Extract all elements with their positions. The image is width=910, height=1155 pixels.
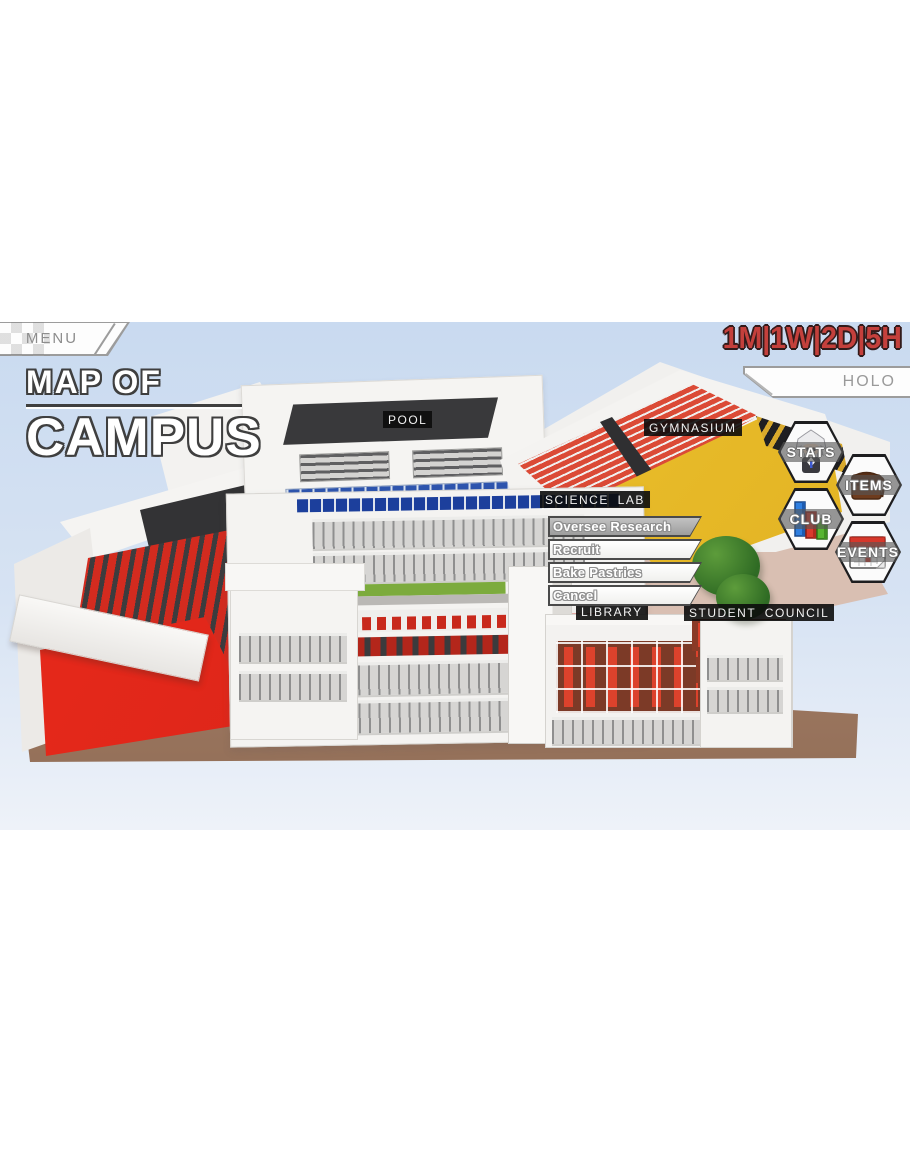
classroom-window-band: [312, 514, 585, 551]
annex-roof-shape: [225, 563, 365, 591]
map-label-pool[interactable]: POOL: [383, 411, 432, 428]
events-label: EVENTS: [837, 544, 899, 560]
items-label: ITEMS: [845, 477, 893, 493]
page-title: MAP OF CAMPUS: [26, 366, 262, 464]
pool-louver-shape: [412, 447, 503, 478]
club-label: CLUB: [790, 511, 833, 527]
game-screen: POOL GYMNASIUM SCIENCE LAB LIBRARY STUDE…: [0, 0, 910, 1155]
map-label-student-council[interactable]: STUDENT COUNCIL: [684, 604, 834, 621]
pool-louver-shape: [299, 451, 390, 482]
context-menu-item-label: Recruit: [553, 542, 600, 557]
student-council-building-shape: [700, 620, 792, 748]
items-label-band: ITEMS: [836, 475, 902, 495]
page-title-line2: CAMPUS: [26, 411, 262, 464]
annex-window-band: [239, 671, 347, 702]
context-menu-item-cancel[interactable]: Cancel: [548, 585, 702, 606]
menu-button-label: MENU: [0, 330, 104, 347]
context-menu-item-recruit[interactable]: Recruit: [548, 539, 702, 560]
club-label-band: CLUB: [778, 509, 844, 529]
map-label-gymnasium[interactable]: GYMNASIUM: [644, 419, 742, 436]
page-title-line1: MAP OF: [26, 366, 262, 398]
context-menu-item-bake-pastries[interactable]: Bake Pastries: [548, 562, 702, 583]
context-menu-item-label: Cancel: [553, 588, 597, 603]
context-menu-item-oversee-research[interactable]: Oversee Research: [548, 516, 702, 537]
title-underline: [26, 404, 242, 407]
campus-map-viewport: POOL GYMNASIUM SCIENCE LAB LIBRARY STUDE…: [0, 322, 910, 830]
context-menu-item-label: Oversee Research: [553, 519, 671, 534]
holo-tab[interactable]: HOLO: [743, 366, 910, 398]
time-display: 1M|1W|2D|5H: [723, 322, 902, 356]
context-menu: Oversee Research Recruit Bake Pastries C…: [548, 516, 702, 608]
student-council-window-band: [707, 687, 783, 714]
map-label-science-lab[interactable]: SCIENCE LAB: [540, 491, 650, 508]
annex-building-shape: [230, 570, 358, 740]
holo-tab-label: HOLO: [843, 373, 896, 391]
stats-label: STATS: [787, 444, 836, 460]
student-council-window-band: [707, 655, 783, 682]
events-label-band: EVENTS: [835, 542, 901, 562]
library-floor-shape: [556, 641, 706, 713]
stats-label-band: STATS: [778, 442, 844, 462]
annex-window-band: [239, 633, 347, 664]
menu-button[interactable]: MENU: [0, 322, 130, 356]
context-menu-item-label: Bake Pastries: [553, 565, 642, 580]
